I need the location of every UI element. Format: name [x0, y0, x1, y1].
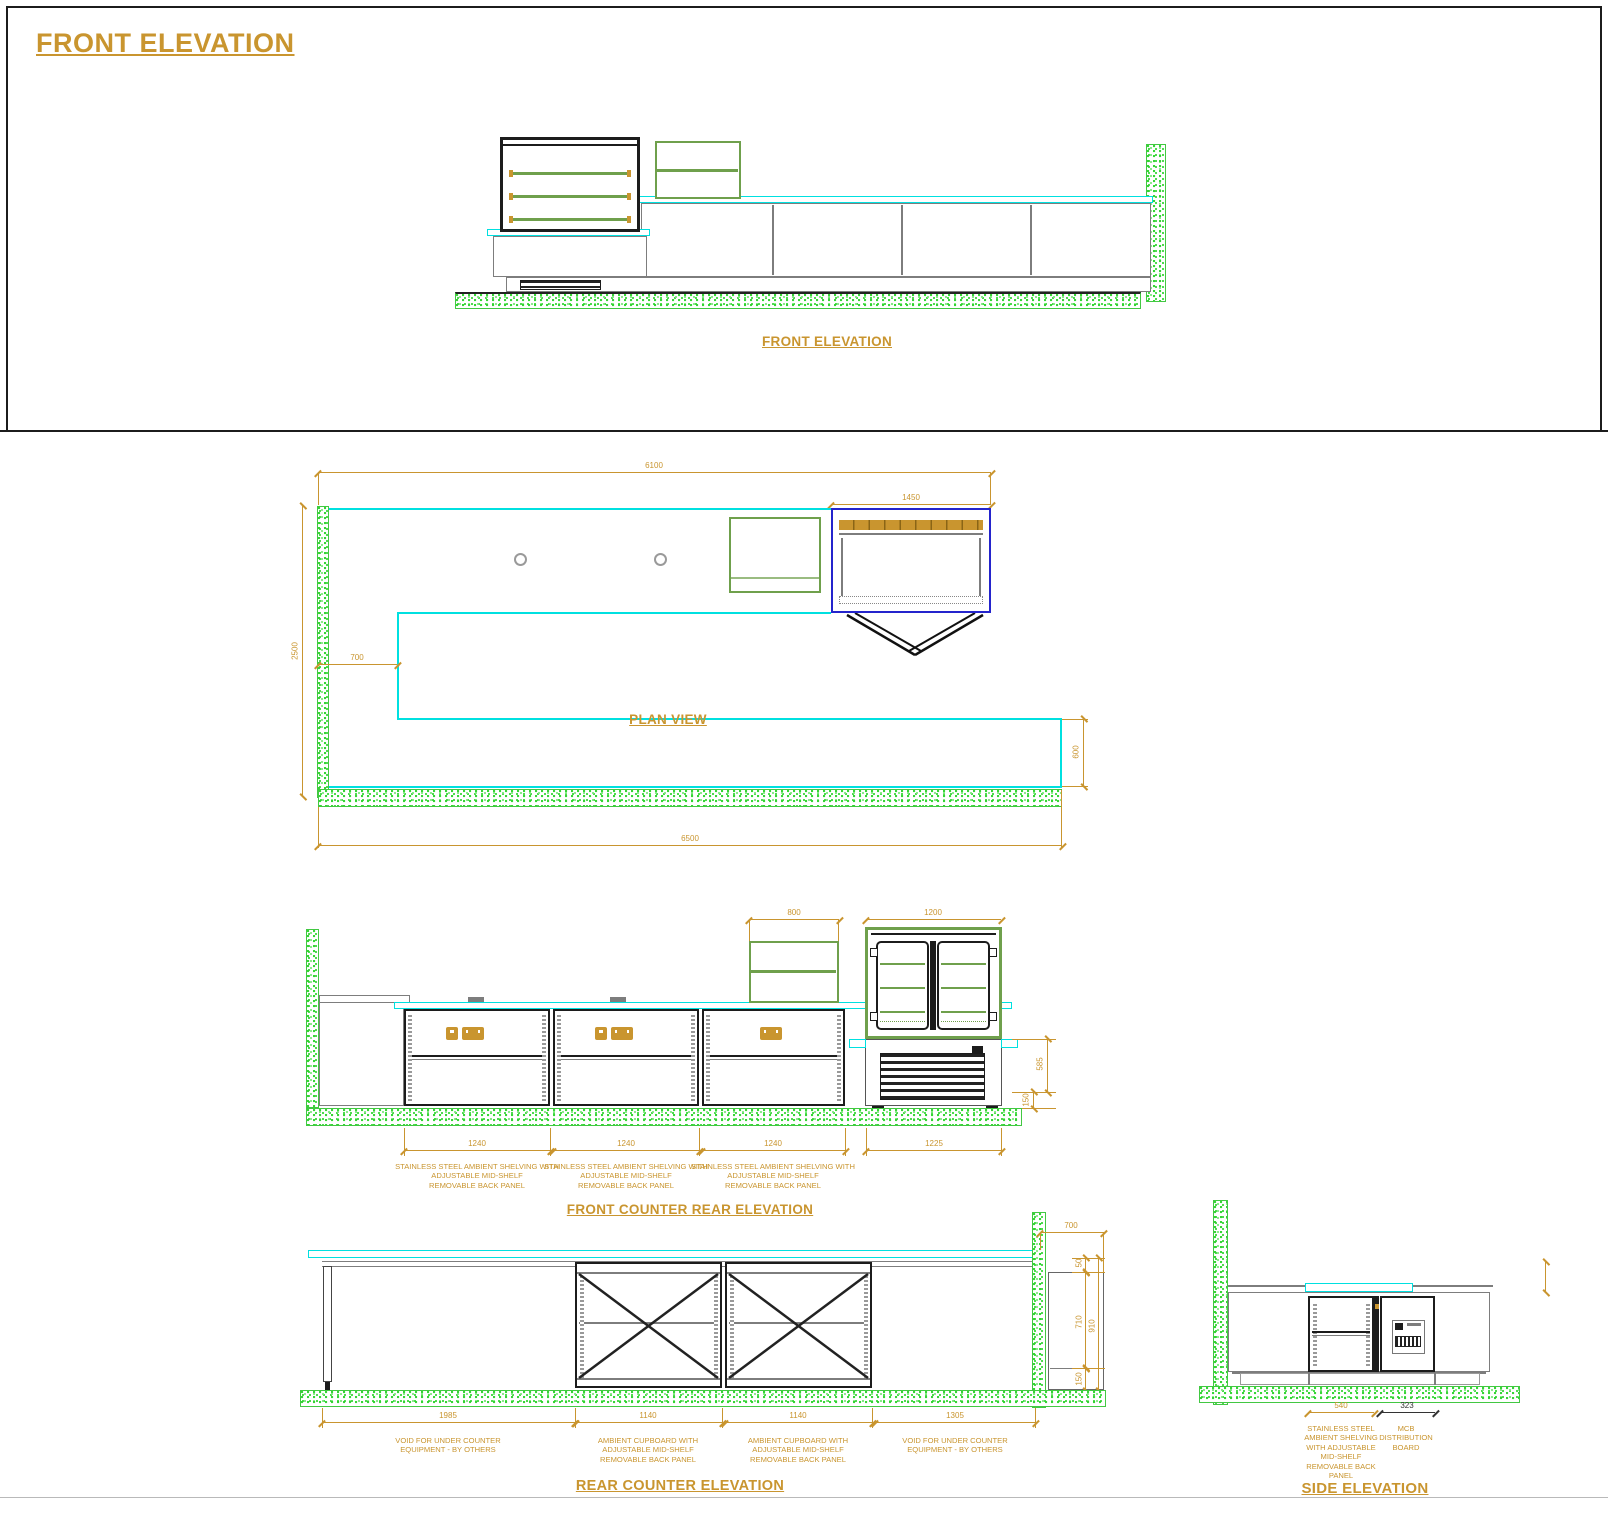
plan-rear-right-edge	[1060, 718, 1062, 788]
ext-line	[1103, 1232, 1104, 1272]
sheet-border-right	[1600, 6, 1602, 430]
dim-1225: 1225	[925, 1139, 943, 1148]
dim-line-585	[1047, 1039, 1048, 1092]
dim-50: 50	[1075, 1259, 1084, 1268]
floor-hatch	[306, 1108, 1022, 1126]
dim-6500: 6500	[681, 834, 699, 843]
dim-line-1450	[831, 504, 991, 505]
section-divider	[0, 430, 1608, 432]
dim-line-800	[749, 919, 839, 920]
ext-line	[1040, 1232, 1041, 1250]
case-shelf	[510, 218, 630, 221]
dim-line-6500	[318, 845, 1062, 846]
case-mullion	[930, 941, 936, 1030]
hinge	[870, 1012, 878, 1021]
mcb-board	[1392, 1320, 1425, 1354]
mid-shelf	[1312, 1331, 1370, 1333]
dim-line-700	[1040, 1232, 1103, 1233]
dim-1140-1: 1140	[639, 1411, 656, 1420]
mcb-door	[1380, 1296, 1435, 1372]
counter-body	[641, 203, 1151, 277]
dim-2500: 2500	[291, 642, 300, 660]
dim-150: 150	[1022, 1093, 1031, 1106]
plinth-vent	[520, 280, 601, 290]
cupboard-note-2: AMBIENT CUPBOARD WITH ADJUSTABLE MID-SHE…	[748, 1436, 848, 1464]
dim-line-323	[1380, 1412, 1435, 1413]
dim-line-1200	[866, 919, 1001, 920]
plinth-mark	[1308, 1373, 1310, 1385]
plinth-mark	[1434, 1373, 1436, 1385]
gantry-shelf-unit	[655, 141, 741, 199]
dim-323: 323	[1400, 1401, 1413, 1410]
door-shelf	[941, 1011, 986, 1013]
plan-display-case	[831, 508, 991, 613]
dim-line-top-detail	[1545, 1262, 1546, 1292]
dim-1140-2: 1140	[789, 1411, 806, 1420]
door-shelf	[880, 963, 925, 965]
plan-inner-edge	[397, 612, 831, 614]
plan-view-label: PLAN VIEW	[629, 712, 707, 727]
cupboard-2	[725, 1262, 872, 1388]
floor-hatch	[300, 1390, 1106, 1407]
dim-700: 700	[1064, 1221, 1077, 1230]
mid-shelf-shadow	[412, 1059, 542, 1060]
plan-gantry-line	[731, 577, 819, 579]
dim-710: 710	[1075, 1315, 1084, 1328]
bay-channel	[691, 1015, 695, 1101]
switch-box	[972, 1046, 983, 1053]
dim-540: 540	[1334, 1401, 1347, 1410]
worktop-clip	[468, 997, 484, 1002]
door-shelf-dotted	[941, 1021, 986, 1022]
side-shelving-unit	[1308, 1296, 1374, 1372]
socket-icon	[760, 1027, 782, 1040]
plan-bottom-hatch	[318, 789, 1062, 807]
case-line	[841, 538, 843, 596]
mid-shelf	[412, 1055, 542, 1057]
dim-line-150	[1085, 1368, 1086, 1390]
dim-line-1225	[866, 1150, 1001, 1151]
ext-line	[322, 1408, 323, 1428]
dim-1200: 1200	[924, 908, 942, 917]
hinge	[989, 1012, 997, 1021]
ext-line	[749, 919, 750, 941]
mid-shelf	[710, 1055, 837, 1057]
mid-shelf-shadow	[561, 1059, 691, 1060]
case-door-left	[876, 941, 929, 1030]
case-inner-rail	[871, 933, 996, 935]
dim-line-700	[318, 664, 397, 665]
dim-line-600	[1083, 719, 1084, 786]
bay-channel	[837, 1015, 841, 1101]
socket-icon	[462, 1027, 484, 1040]
ext-line	[990, 472, 991, 505]
counter-leg	[323, 1266, 332, 1382]
floor-hatch	[455, 292, 1141, 309]
wall-hatch	[306, 929, 319, 1108]
shelving-bay-3	[702, 1009, 845, 1106]
x-brace	[727, 1272, 870, 1380]
counter-top	[1305, 1283, 1413, 1292]
void-note-right: VOID FOR UNDER COUNTER EQUIPMENT - BY OT…	[902, 1436, 1007, 1455]
dim-1305: 1305	[946, 1411, 964, 1420]
case-line	[979, 538, 981, 596]
door-swing-lines	[835, 613, 995, 661]
dim-585: 585	[1036, 1057, 1045, 1070]
plinth	[506, 277, 1151, 292]
plan-wall-hatch	[317, 506, 329, 798]
door-shelf-dotted	[880, 1021, 925, 1022]
ext-line	[318, 472, 319, 505]
bay-note-3: STAINLESS STEEL AMBIENT SHELVING WITH AD…	[691, 1162, 855, 1190]
rear-counter-elevation-title: REAR COUNTER ELEVATION	[576, 1478, 784, 1494]
leg-foot	[325, 1382, 330, 1390]
dim-1240-3: 1240	[764, 1139, 782, 1148]
worktop-grommet	[654, 553, 667, 566]
latch-mark	[1375, 1304, 1379, 1309]
ext-line	[1061, 790, 1062, 848]
case-top-rail	[503, 144, 637, 146]
dim-150: 150	[1075, 1372, 1084, 1385]
bay-channel	[542, 1015, 546, 1101]
dim-line-910	[1098, 1258, 1099, 1390]
dim-700: 700	[350, 653, 363, 662]
dim-line-1985	[322, 1422, 575, 1423]
sheet-border-top	[6, 6, 1602, 8]
dim-800: 800	[787, 908, 800, 917]
plinth	[1240, 1373, 1480, 1385]
case-line	[839, 533, 983, 535]
dim-1450: 1450	[902, 493, 920, 502]
sheet-border-bottom	[0, 1497, 1608, 1498]
dim-line-1140a	[575, 1422, 722, 1423]
left-end-cabinet	[319, 1002, 404, 1106]
wall-hatch	[1032, 1212, 1046, 1408]
dim-1240-1: 1240	[468, 1139, 486, 1148]
dim-line-540	[1308, 1412, 1374, 1413]
hinge	[870, 948, 878, 957]
mcb-breaker-row	[1395, 1336, 1421, 1347]
dim-600: 600	[1072, 745, 1081, 758]
case-door-right	[937, 941, 990, 1030]
glass-display-case	[865, 927, 1002, 1039]
infill-top	[1001, 1039, 1018, 1048]
mcb-label	[1407, 1323, 1421, 1326]
socket-icon	[446, 1027, 458, 1040]
gantry-mid-shelf	[751, 970, 836, 973]
socket-icon	[611, 1027, 633, 1040]
bay-channel	[408, 1015, 412, 1101]
dim-line-6100	[318, 472, 991, 473]
case-base-band	[839, 596, 983, 604]
dim-910: 910	[1088, 1319, 1097, 1332]
dim-line-1305	[875, 1422, 1035, 1423]
mcb-main-switch	[1395, 1323, 1403, 1330]
void-note-left: VOID FOR UNDER COUNTER EQUIPMENT - BY OT…	[395, 1436, 500, 1455]
dim-1240-2: 1240	[617, 1139, 635, 1148]
dim-1985: 1985	[439, 1411, 457, 1420]
shelving-bay-1	[404, 1009, 550, 1106]
mid-shelf-shadow	[710, 1059, 837, 1060]
floor-hatch	[1199, 1386, 1520, 1403]
plan-rear-top-edge	[397, 718, 1062, 720]
plan-bottom-edge	[329, 786, 1062, 788]
dim-line-2500	[302, 506, 303, 796]
mid-shelf-shadow	[1312, 1335, 1370, 1336]
ext-line	[318, 807, 319, 848]
side-shelving-note: STAINLESS STEEL AMBIENT SHELVING WITH AD…	[1304, 1424, 1378, 1481]
infill-top	[849, 1039, 866, 1048]
wall-hatch	[1213, 1200, 1228, 1405]
display-case	[500, 137, 640, 232]
ext-line	[838, 919, 839, 941]
door-shelf	[941, 963, 986, 965]
counter-divider	[901, 205, 903, 275]
front-counter-rear-elevation-title: FRONT COUNTER REAR ELEVATION	[567, 1202, 813, 1217]
dim-line-bay3	[702, 1150, 845, 1151]
shelving-bay-2	[553, 1009, 699, 1106]
dim-line-bay1	[404, 1150, 550, 1151]
display-counter-body	[493, 236, 647, 277]
door-shelf	[880, 987, 925, 989]
cupboard-1	[575, 1262, 722, 1388]
dim-line-bay2	[553, 1150, 699, 1151]
socket-icon	[595, 1027, 607, 1040]
x-brace	[577, 1272, 720, 1380]
dim-line-150	[1033, 1092, 1034, 1108]
dim-line-1140b	[725, 1422, 872, 1423]
dim-line-710	[1085, 1272, 1086, 1368]
plan-top-edge	[329, 508, 831, 510]
dim-6100: 6100	[645, 461, 663, 470]
front-elevation-label: FRONT ELEVATION	[762, 334, 892, 349]
mid-shelf	[561, 1055, 691, 1057]
case-gold-rail	[839, 520, 983, 530]
case-shelf	[510, 172, 630, 175]
worktop-clip	[610, 997, 626, 1002]
sheet-border-left	[6, 6, 8, 430]
case-shelf	[510, 195, 630, 198]
drawing-sheet: FRONT ELEVATION FRONT ELEVATION	[0, 0, 1608, 1524]
mcb-note: MCB DISTRIBUTION BOARD	[1379, 1424, 1433, 1452]
cupboard-note-1: AMBIENT CUPBOARD WITH ADJUSTABLE MID-SHE…	[598, 1436, 698, 1464]
plan-gantry-shelf	[729, 517, 821, 593]
counter-top	[308, 1250, 1035, 1258]
bay-channel	[706, 1015, 710, 1101]
side-elevation-title: SIDE ELEVATION	[1302, 1480, 1429, 1497]
bay-note-1: STAINLESS STEEL AMBIENT SHELVING WITH AD…	[395, 1162, 559, 1190]
counter-divider	[772, 205, 774, 275]
counter-divider	[1030, 205, 1032, 275]
door-shelf	[880, 1011, 925, 1013]
bay-channel	[557, 1015, 561, 1101]
worktop-grommet	[514, 553, 527, 566]
gantry-shelf-unit	[749, 941, 839, 1003]
compressor-vent	[880, 1053, 985, 1100]
gantry-mid-shelf	[657, 169, 738, 172]
page-title: FRONT ELEVATION	[36, 28, 295, 59]
bay-note-2: STAINLESS STEEL AMBIENT SHELVING WITH AD…	[544, 1162, 708, 1190]
hinge	[989, 948, 997, 957]
door-shelf	[941, 987, 986, 989]
